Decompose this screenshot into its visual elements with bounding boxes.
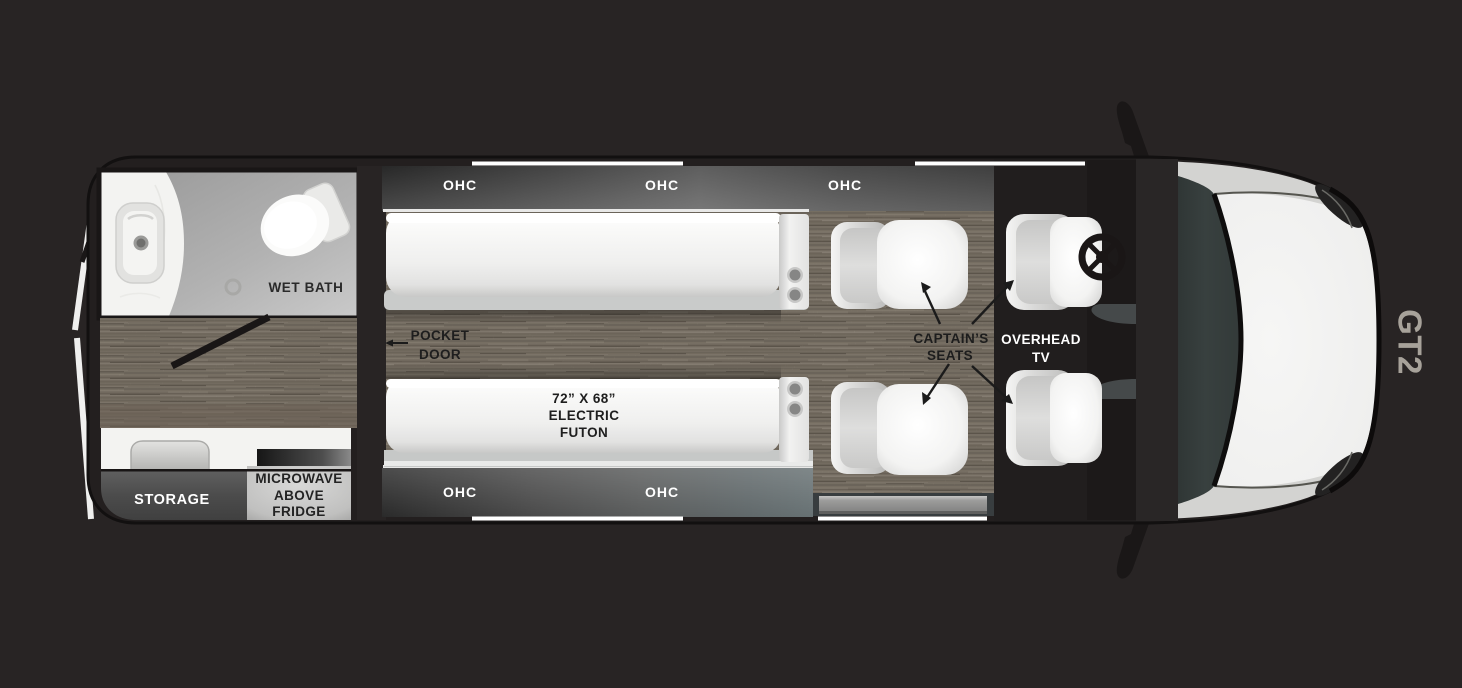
- svg-text:WET BATH: WET BATH: [268, 280, 343, 295]
- svg-text:FRIDGE: FRIDGE: [272, 504, 325, 519]
- svg-text:72” X 68”: 72” X 68”: [552, 391, 616, 406]
- svg-text:FUTON: FUTON: [560, 425, 608, 440]
- svg-text:OHC: OHC: [443, 177, 477, 193]
- svg-text:STORAGE: STORAGE: [134, 492, 210, 508]
- svg-text:OHC: OHC: [645, 177, 679, 193]
- svg-text:CAPTAIN’S: CAPTAIN’S: [913, 331, 988, 346]
- svg-text:DOOR: DOOR: [419, 347, 461, 362]
- svg-text:ABOVE: ABOVE: [274, 488, 324, 503]
- svg-text:ELECTRIC: ELECTRIC: [549, 408, 620, 423]
- svg-text:OHC: OHC: [443, 484, 477, 500]
- svg-text:POCKET: POCKET: [411, 328, 470, 343]
- svg-text:OVERHEAD: OVERHEAD: [1001, 332, 1081, 347]
- svg-text:OHC: OHC: [828, 177, 862, 193]
- svg-text:TV: TV: [1032, 350, 1050, 365]
- svg-text:MICROWAVE: MICROWAVE: [255, 471, 342, 486]
- svg-text:OHC: OHC: [645, 484, 679, 500]
- svg-text:SEATS: SEATS: [927, 348, 973, 363]
- svg-text:GT2: GT2: [1392, 309, 1429, 375]
